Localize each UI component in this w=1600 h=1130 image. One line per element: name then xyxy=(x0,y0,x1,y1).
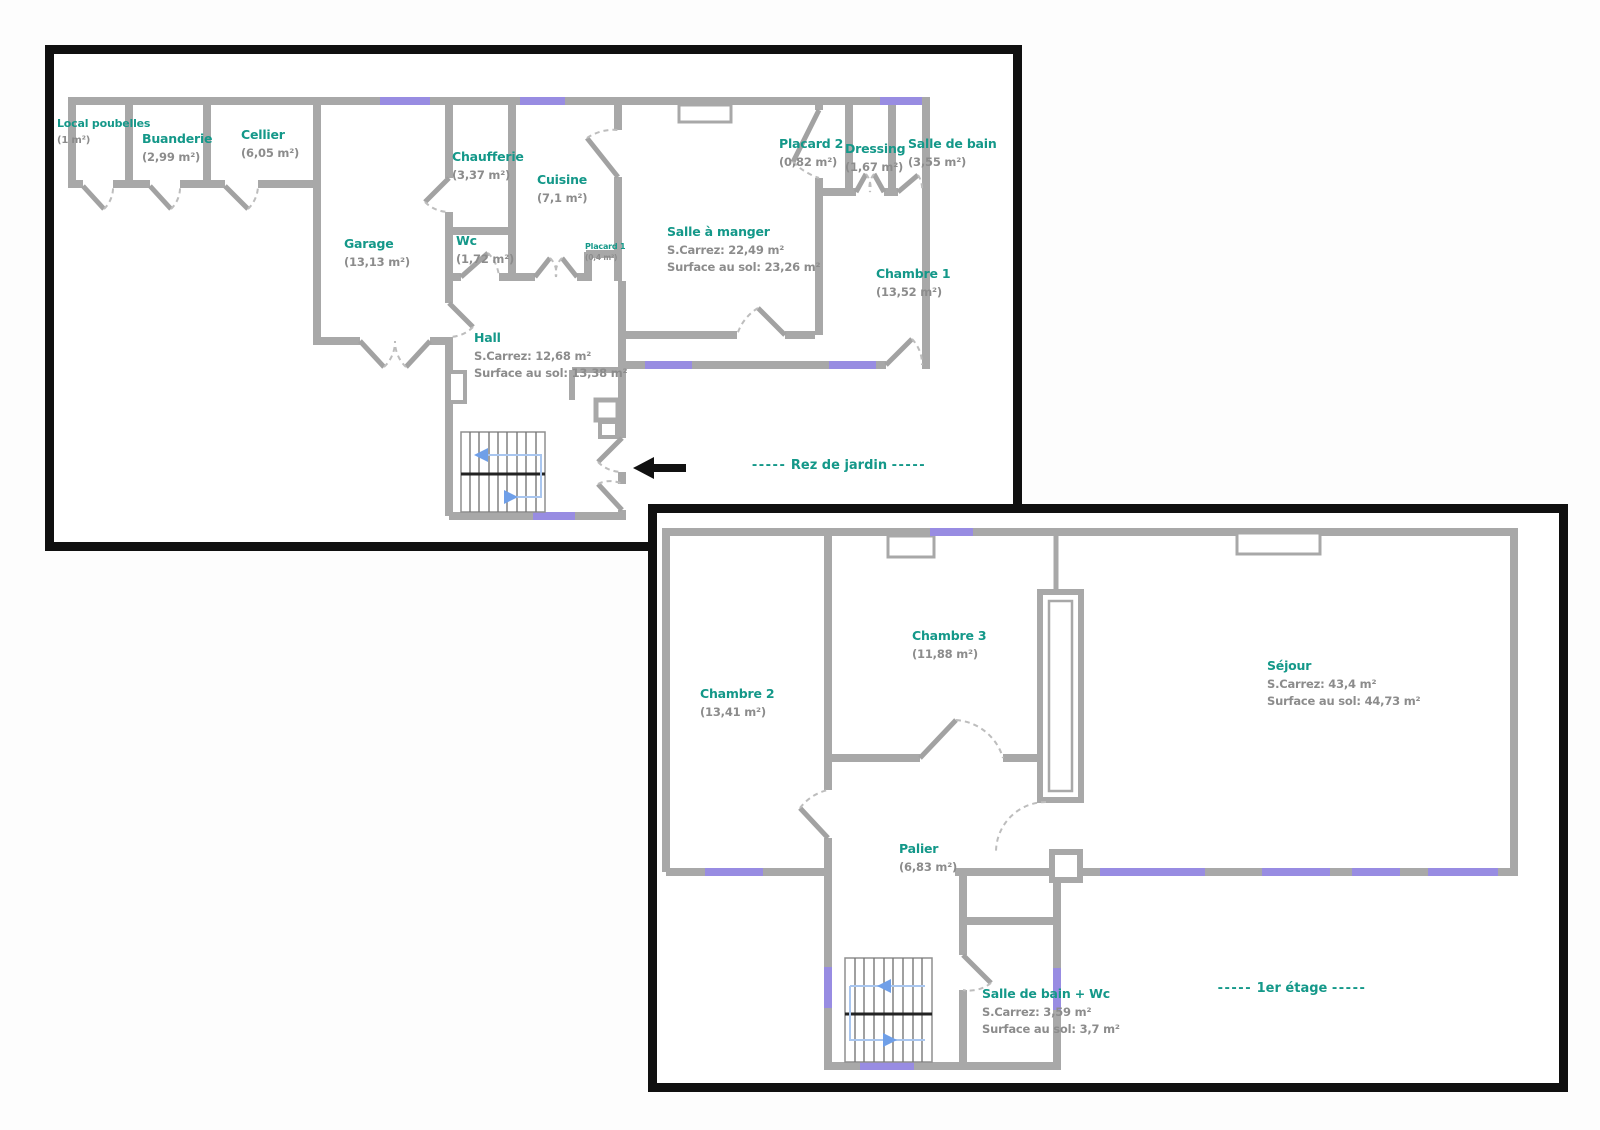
plan-rez-de-jardin xyxy=(45,45,1022,551)
plan2-drawing xyxy=(657,513,1559,1083)
plan2-chimney xyxy=(888,533,1320,880)
plan2-walls xyxy=(666,528,1518,1066)
plan2-staircase xyxy=(845,958,932,1062)
plan2-windows xyxy=(705,528,1498,1070)
left-arrow-icon xyxy=(633,457,686,479)
plan1-staircase xyxy=(461,432,545,512)
plan-1er-etage xyxy=(648,504,1568,1092)
floor-plans-canvas: Local poubelles (1 m²) Buanderie (2,99 m… xyxy=(0,0,1600,1130)
plan1-drawing xyxy=(54,54,1013,542)
